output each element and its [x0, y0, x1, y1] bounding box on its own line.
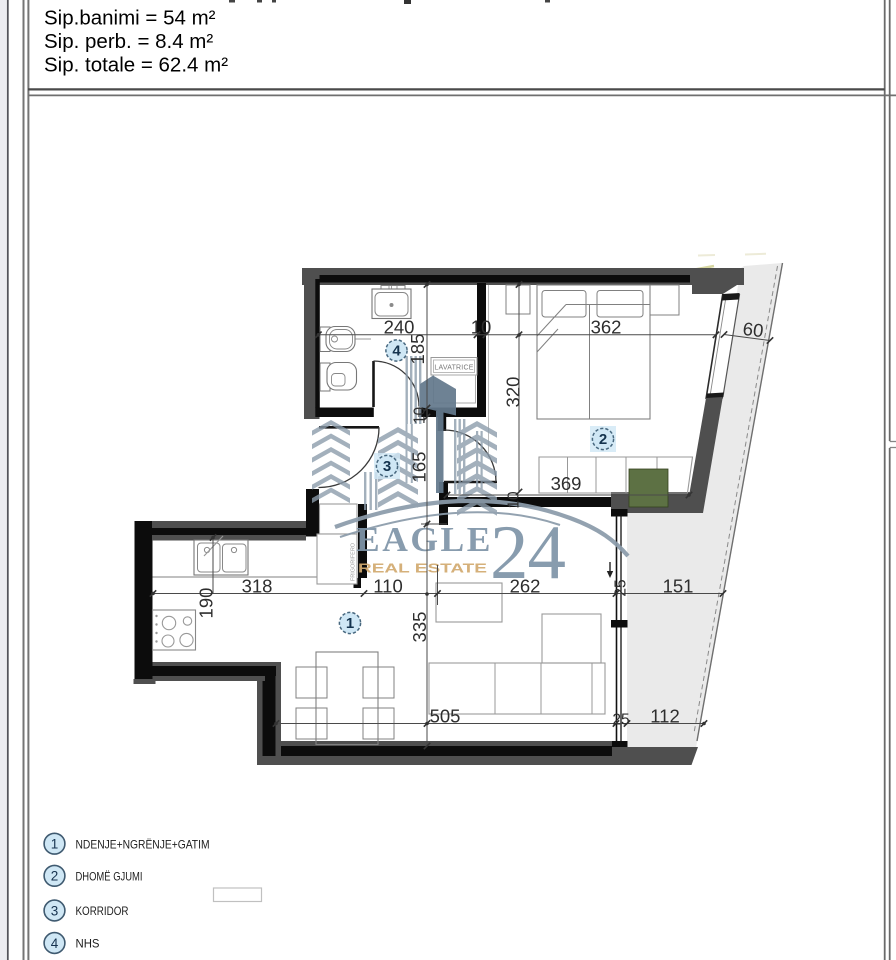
svg-text:112: 112: [650, 705, 680, 726]
svg-text:3: 3: [383, 458, 391, 475]
svg-text:Sip. perb. = 8.4 m²: Sip. perb. = 8.4 m²: [44, 30, 213, 53]
svg-text:10: 10: [506, 491, 523, 509]
svg-text:335: 335: [409, 612, 430, 643]
svg-text:Sip.banimi = 54 m²: Sip.banimi = 54 m²: [44, 7, 216, 30]
svg-text:318: 318: [242, 575, 273, 596]
svg-text:NHS: NHS: [76, 937, 100, 951]
svg-text:DHOMË GJUMI: DHOMË GJUMI: [76, 870, 143, 884]
svg-text:4: 4: [392, 343, 401, 360]
svg-text:1: 1: [346, 615, 354, 632]
svg-text:4: 4: [51, 936, 59, 951]
svg-text:25: 25: [612, 712, 629, 729]
svg-text:25: 25: [613, 579, 630, 596]
svg-text:10: 10: [471, 317, 492, 338]
svg-text:2: 2: [51, 869, 59, 884]
svg-text:10: 10: [412, 407, 429, 425]
svg-text:151: 151: [663, 575, 694, 596]
svg-text:320: 320: [503, 377, 524, 408]
svg-text:165: 165: [409, 452, 430, 483]
svg-text:190: 190: [196, 588, 217, 619]
svg-text:3: 3: [51, 903, 59, 918]
svg-text:2: 2: [599, 431, 607, 448]
svg-text:110: 110: [373, 575, 403, 596]
svg-text:60: 60: [742, 318, 765, 341]
svg-text:505: 505: [430, 705, 461, 726]
svg-text:262: 262: [510, 575, 541, 596]
svg-text:1: 1: [51, 837, 59, 852]
svg-text:LAVATRICE: LAVATRICE: [434, 365, 473, 372]
svg-text:369: 369: [551, 473, 582, 494]
svg-text:185: 185: [407, 334, 428, 365]
svg-text:KORRIDOR: KORRIDOR: [76, 904, 129, 918]
svg-text:REAL ESTATE: REAL ESTATE: [358, 562, 487, 576]
svg-text:NDENJE+NGRËNJE+GATIM: NDENJE+NGRËNJE+GATIM: [76, 838, 210, 852]
svg-text:362: 362: [591, 317, 622, 338]
svg-text:Sip. totale = 62.4 m²: Sip. totale = 62.4 m²: [44, 54, 228, 77]
